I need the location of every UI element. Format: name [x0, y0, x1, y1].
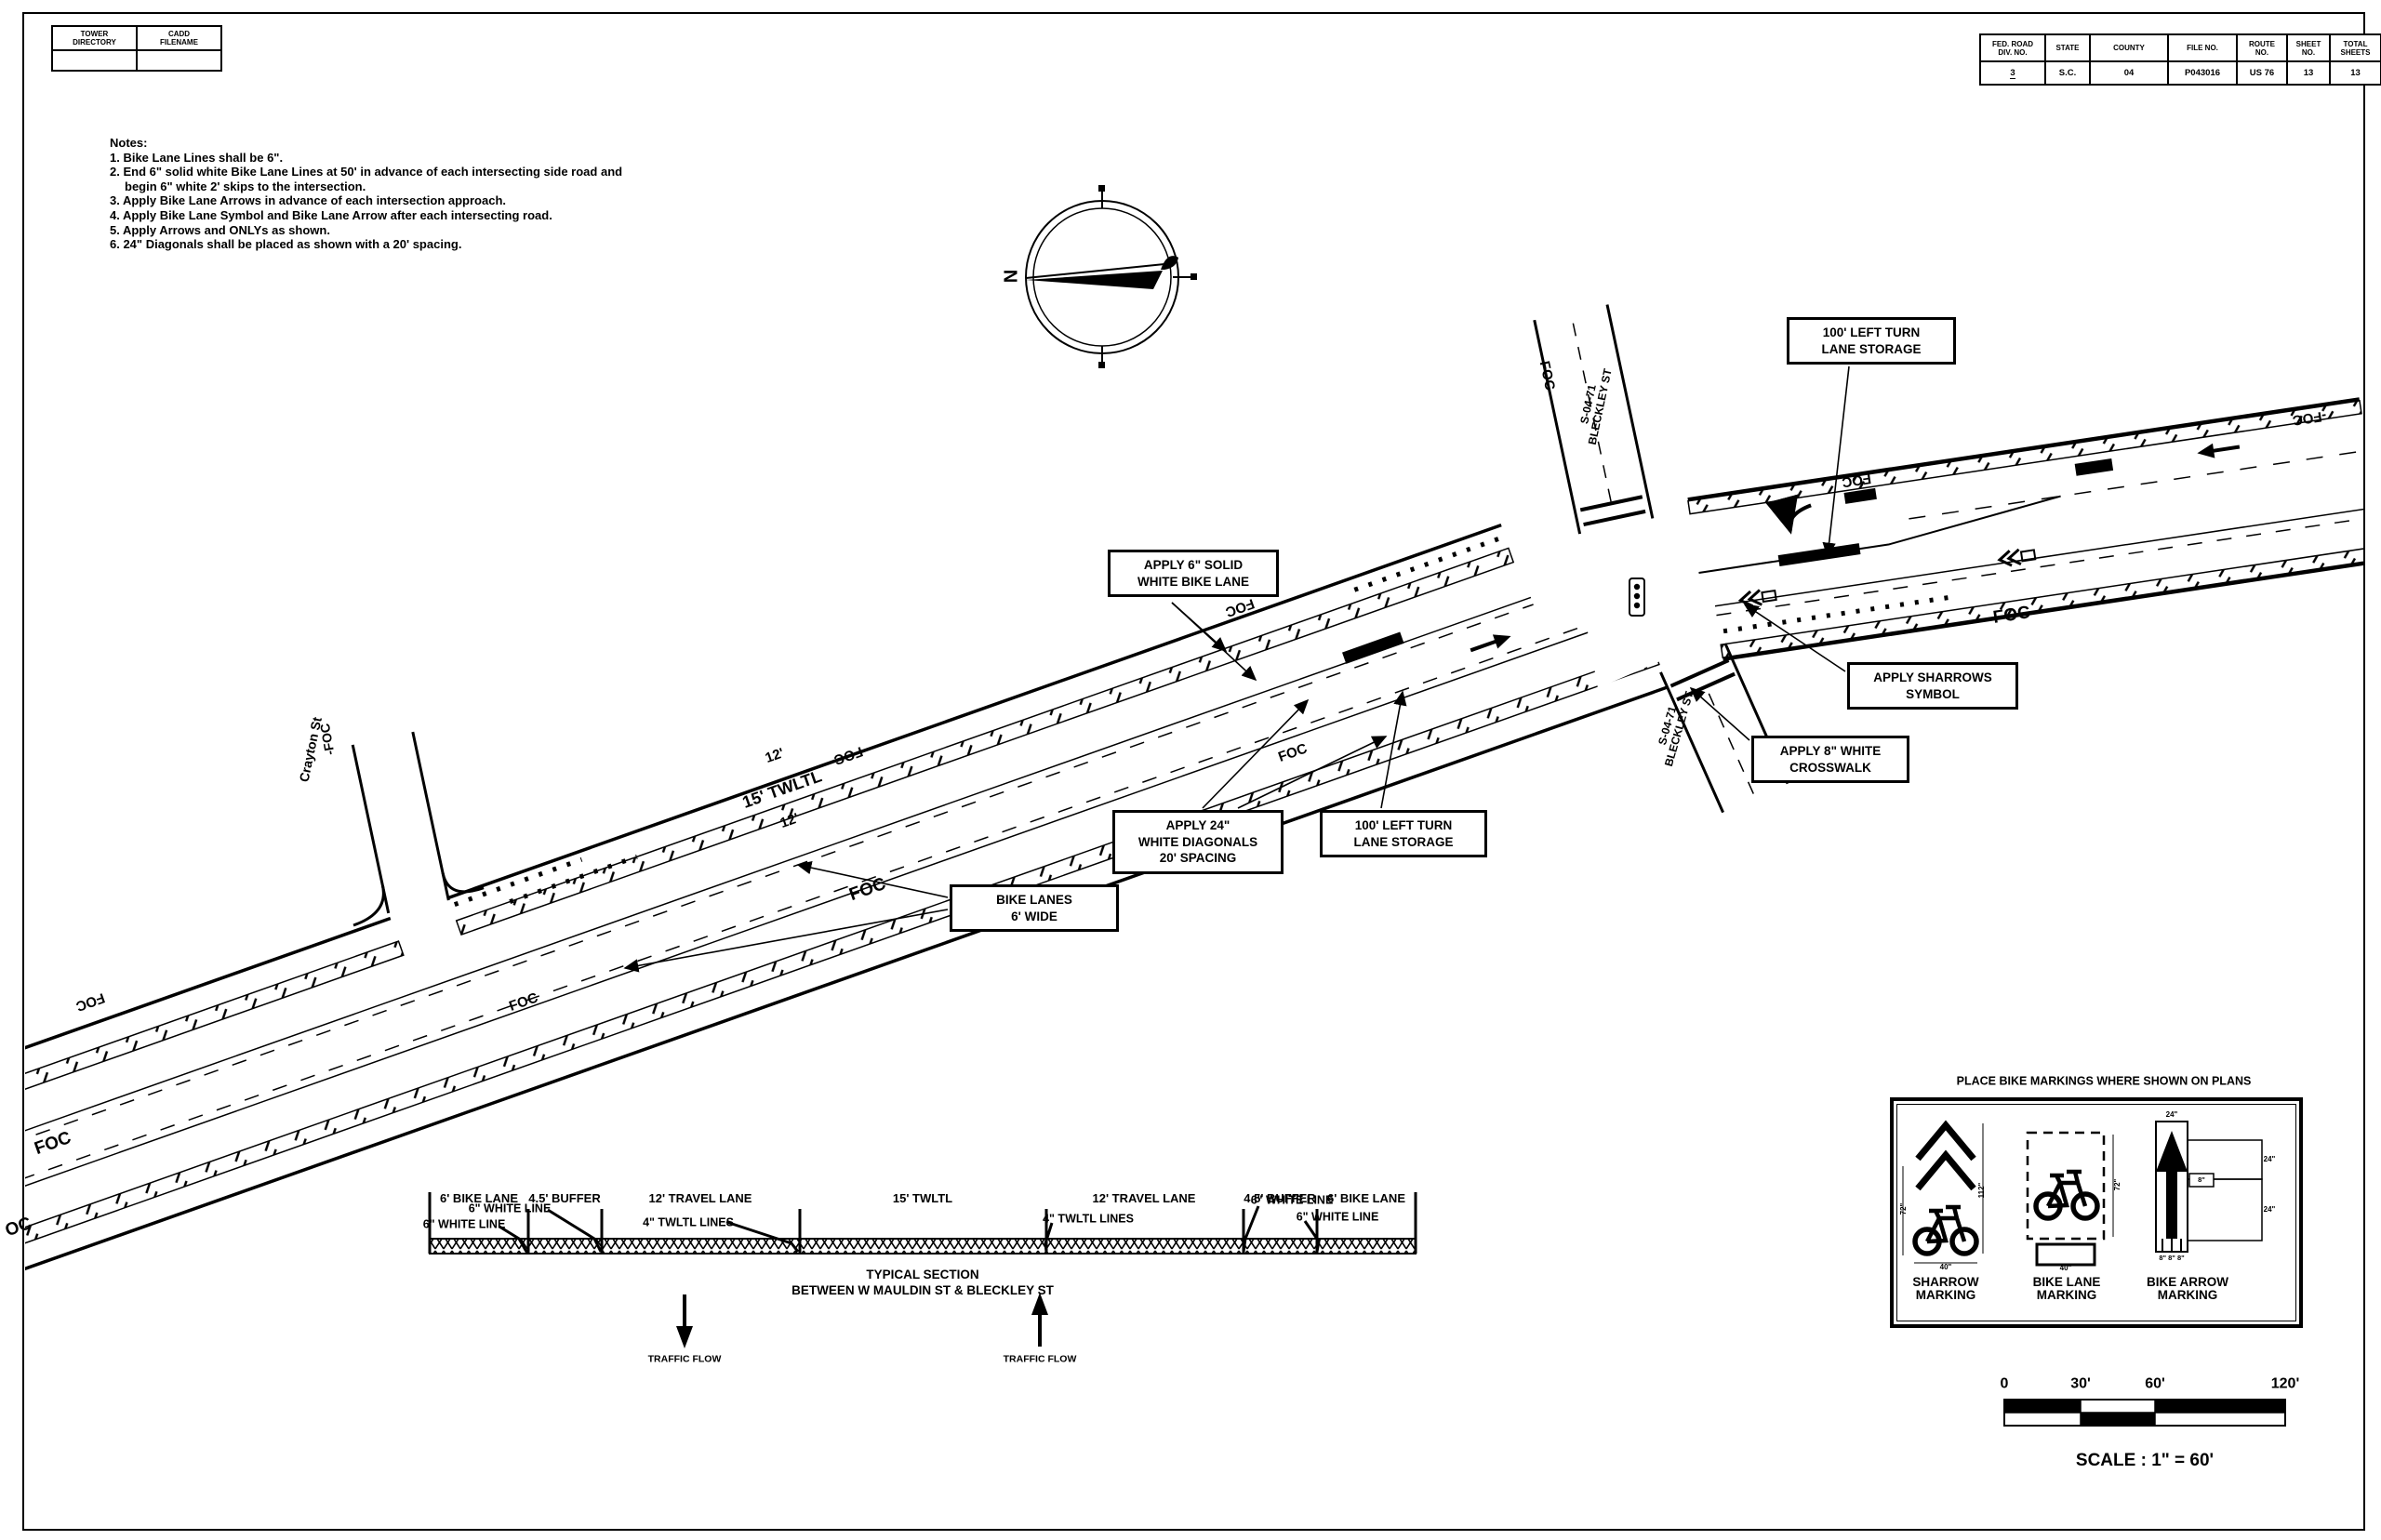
legend-dim-label: 8" [2198, 1176, 2205, 1184]
title-block-header-file-no: FILE NO. [2169, 35, 2238, 60]
section-caption-title: TYPICAL SECTION [866, 1268, 978, 1281]
section-lane-twltl: 15' TWLTL [893, 1192, 952, 1205]
title-block-value-fed-road: 3 [1981, 62, 2046, 84]
note-item: 2. End 6" solid white Bike Lane Lines at… [110, 165, 654, 193]
section-leader-white-line: 6" WHITE LINE [1251, 1194, 1334, 1206]
legend-dim-label: 112" [1978, 1183, 1986, 1199]
section-leader-twltl-lines: 4" TWLTL LINES [1043, 1213, 1134, 1225]
corner-table-header-cadd-filename: CADD FILENAME [138, 27, 220, 49]
title-block-header-total-sheets: TOTAL SHEETS [2331, 35, 2380, 60]
corner-table-header-tower-directory: TOWER DIRECTORY [53, 27, 138, 49]
legend-dim-label: 72" [2114, 1179, 2122, 1191]
legend-label-bike-lane: BIKE LANE MARKING [2033, 1276, 2101, 1302]
section-lane-travel-left: 12' TRAVEL LANE [649, 1192, 752, 1205]
title-block-value-total-sheets: 13 [2331, 62, 2380, 84]
note-item: 5. Apply Arrows and ONLYs as shown. [110, 223, 654, 238]
callout-sharrows: APPLY SHARROWS SYMBOL [1847, 662, 2018, 710]
scale-tick-label: 120' [2271, 1377, 2300, 1393]
legend-dim-label: 40" [1940, 1264, 1952, 1271]
callout-left-turn-storage-sw: 100' LEFT TURN LANE STORAGE [1320, 810, 1487, 857]
legend-dim-label: 24" [2264, 1206, 2276, 1214]
legend-dim-label: 8" 8" 8" [2159, 1255, 2184, 1262]
note-item: 4. Apply Bike Lane Symbol and Bike Lane … [110, 208, 654, 223]
section-lane-travel-right: 12' TRAVEL LANE [1093, 1192, 1196, 1205]
title-block-header-county: COUNTY [2091, 35, 2169, 60]
plan-sheet: TOWER DIRECTORY CADD FILENAME FED. ROAD … [0, 0, 2381, 1540]
traffic-flow-label-right: TRAFFIC FLOW [1004, 1354, 1077, 1364]
corner-table-cell-empty [53, 51, 138, 70]
title-block-header-route-no: ROUTE NO. [2238, 35, 2288, 60]
title-block-value-route-no: US 76 [2238, 62, 2288, 84]
traffic-flow-label-left: TRAFFIC FLOW [648, 1354, 722, 1364]
legend-dim-label: 40" [2060, 1265, 2072, 1272]
legend-header: PLACE BIKE MARKINGS WHERE SHOWN ON PLANS [1957, 1075, 2252, 1087]
foc-label: FOC [1841, 471, 1872, 489]
section-leader-white-line: 6" WHITE LINE [469, 1202, 552, 1215]
title-block-value-file-no: P043016 [2169, 62, 2238, 84]
callout-bike-lanes: BIKE LANES 6' WIDE [950, 884, 1119, 932]
north-label: N [1003, 270, 1022, 283]
callout-left-turn-storage-ne: 100' LEFT TURN LANE STORAGE [1787, 317, 1956, 365]
section-lane-bike-right: 6' BIKE LANE [1327, 1192, 1405, 1205]
corner-table-cell-empty [138, 51, 220, 70]
legend-dim-label: 24" [2264, 1156, 2276, 1163]
title-block-value-state: S.C. [2046, 62, 2091, 84]
note-item: 3. Apply Bike Lane Arrows in advance of … [110, 193, 654, 208]
section-leader-white-line: 6" WHITE LINE [1297, 1211, 1379, 1223]
scale-caption: SCALE : 1" = 60' [2076, 1452, 2214, 1470]
notes-block: Notes: 1. Bike Lane Lines shall be 6". 2… [110, 136, 654, 252]
corner-reference-table: TOWER DIRECTORY CADD FILENAME [51, 25, 222, 72]
title-block-value-county: 04 [2091, 62, 2169, 84]
scale-tick-label: 60' [2145, 1377, 2165, 1393]
callout-solid-white-bike-lane: APPLY 6" SOLID WHITE BIKE LANE [1108, 550, 1279, 597]
legend-dim-label: 24" [2166, 1111, 2178, 1119]
title-block-header-state: STATE [2046, 35, 2091, 60]
scale-tick-label: 0 [2001, 1377, 2009, 1393]
legend-dim-label: 72" [1900, 1203, 1908, 1215]
section-leader-twltl-lines: 4" TWLTL LINES [643, 1216, 734, 1228]
scale-tick-label: 30' [2070, 1377, 2091, 1393]
section-caption-subtitle: BETWEEN W MAULDIN ST & BLECKLEY ST [791, 1284, 1054, 1297]
legend-label-sharrow: SHARROW MARKING [1912, 1276, 1978, 1302]
callout-crosswalk: APPLY 8" WHITE CROSSWALK [1751, 736, 1909, 783]
title-block: FED. ROAD DIV. NO. STATE COUNTY FILE NO.… [1979, 33, 2381, 86]
notes-heading: Notes: [110, 136, 654, 151]
title-block-header-sheet-no: SHEET NO. [2288, 35, 2331, 60]
legend-label-bike-arrow: BIKE ARROW MARKING [2147, 1276, 2228, 1302]
title-block-header-fed-road: FED. ROAD DIV. NO. [1981, 35, 2046, 60]
section-leader-white-line: 6" WHITE LINE [423, 1218, 506, 1230]
note-item: 6. 24" Diagonals shall be placed as show… [110, 237, 654, 252]
note-item: 1. Bike Lane Lines shall be 6". [110, 151, 654, 166]
title-block-value-sheet-no: 13 [2288, 62, 2331, 84]
callout-white-diagonals: APPLY 24" WHITE DIAGONALS 20' SPACING [1112, 810, 1284, 874]
